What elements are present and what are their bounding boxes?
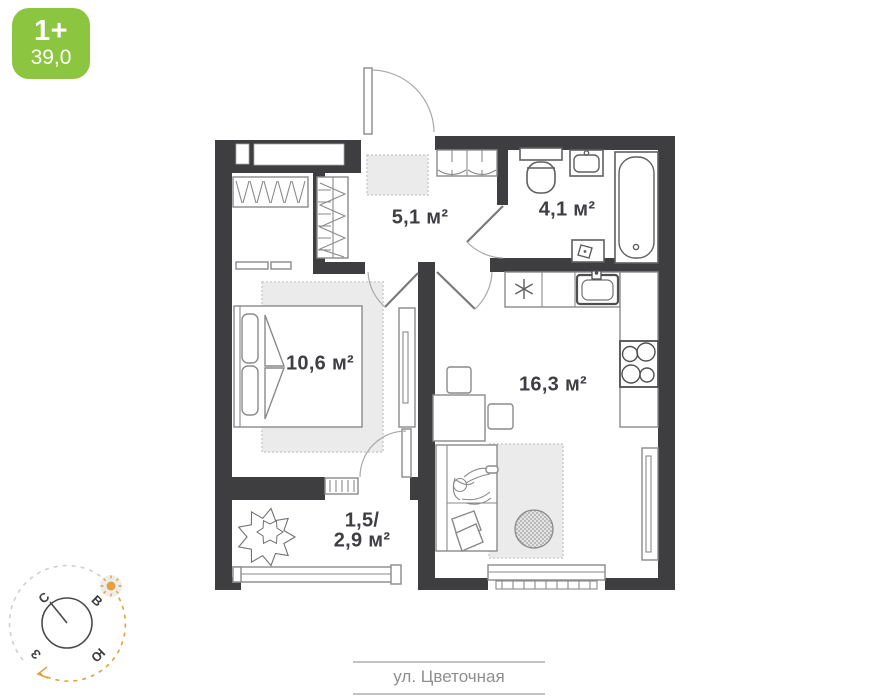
hallway-area-label: 5,1 м² <box>392 207 449 230</box>
bathroom-sink <box>570 150 603 176</box>
toilet <box>520 148 562 193</box>
entry-mat <box>367 155 428 195</box>
chair <box>488 404 513 429</box>
wall-right <box>658 136 675 590</box>
compass-letter-east: В <box>89 592 106 609</box>
wall-left <box>215 140 232 590</box>
pillow <box>242 366 258 415</box>
balcony-area-label: 1,5/ 2,9 м² <box>334 511 391 552</box>
bathroom-area-label: 4,1 м² <box>539 199 596 222</box>
compass-letter-west: З <box>28 646 44 662</box>
wall-niche-long <box>254 144 344 165</box>
bathroom-door <box>467 206 503 258</box>
bedroom-radiator <box>325 478 358 494</box>
balcony-area-line1: 1,5/ <box>334 511 391 531</box>
living-room-door <box>437 272 492 309</box>
pouf <box>515 510 553 548</box>
stove <box>620 341 658 387</box>
wardrobe-sliding-door <box>271 262 291 269</box>
compass: С В З Ю <box>10 566 126 682</box>
balcony-area-line2: 2,9 м² <box>334 531 391 551</box>
coat-closet <box>437 150 497 176</box>
apartment-type-badge: 1+ 39,0 <box>12 8 90 79</box>
street-label-block: ул. Цветочная <box>353 661 545 695</box>
living-room-window <box>488 565 605 589</box>
wall-niche-small <box>236 144 249 164</box>
floor-plan-drawing: С В З Ю <box>0 0 892 700</box>
hallway-shelving <box>317 177 348 258</box>
living-wardrobe <box>642 448 658 560</box>
balcony-items <box>239 508 295 565</box>
wall-bottom-center <box>418 578 488 590</box>
pillow <box>242 314 258 363</box>
sun-icon <box>100 575 122 597</box>
plant-icon <box>239 508 295 565</box>
built-in-wardrobe <box>233 177 308 269</box>
sofa-bed <box>436 445 498 551</box>
chair <box>447 367 471 393</box>
compass-arrow <box>38 667 48 678</box>
bedroom-area-label: 10,6 м² <box>286 353 354 376</box>
badge-room-count: 1+ <box>12 17 90 46</box>
kitchen-sink <box>577 271 618 304</box>
kitchen-fixtures <box>505 271 658 427</box>
kitchen-living-area-label: 16,3 м² <box>519 374 587 397</box>
dining-table <box>433 367 513 441</box>
wall-bottom-right <box>605 578 675 590</box>
wardrobe-sliding-door <box>236 262 268 269</box>
badge-total-area: 39,0 <box>12 46 90 70</box>
wall-balcony-door-pier <box>410 477 420 500</box>
balcony-glazing <box>233 565 401 584</box>
wall-bathroom-left <box>497 148 508 205</box>
floor-plan-page: С В З Ю 1+ 39,0 5,1 м² 4,1 м² 10,6 м² 16… <box>0 0 892 700</box>
bathtub <box>615 152 658 263</box>
street-name: ул. Цветочная <box>353 663 545 693</box>
tv-stand <box>399 308 415 427</box>
wall-bedroom-balcony <box>232 477 325 500</box>
wall-hallway-bottom-left <box>313 262 365 274</box>
entrance-door <box>364 68 434 134</box>
compass-letter-south: Ю <box>88 645 108 665</box>
floor-drain <box>572 240 604 262</box>
